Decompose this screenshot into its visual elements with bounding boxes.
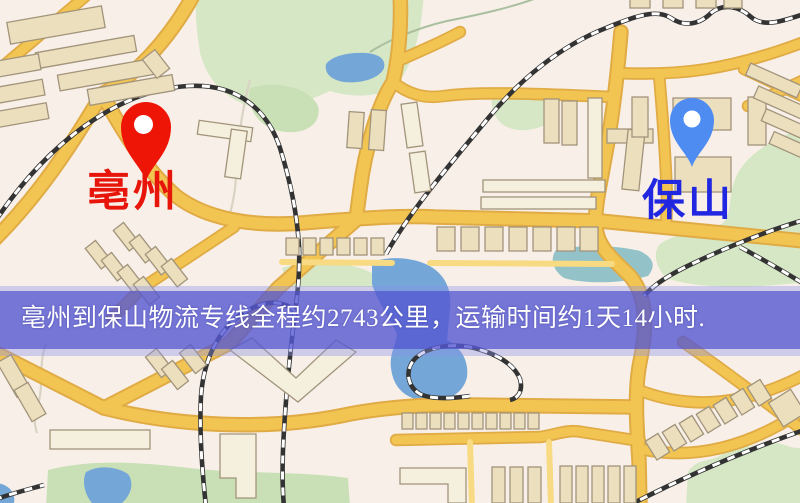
map-image <box>0 0 800 503</box>
red-marker-hole <box>134 115 153 134</box>
destination-city-label: 保山 <box>642 179 734 225</box>
map-canvas: 亳州到保山物流专线全程约2743公里，运输时间约1天14小时. 亳州 保山 <box>0 0 800 503</box>
origin-city-label: 亳州 <box>87 170 179 216</box>
route-summary-text: 亳州到保山物流专线全程约2743公里，运输时间约1天14小时. <box>21 305 705 333</box>
blue-marker-hole <box>684 111 701 128</box>
route-info-banner: 亳州到保山物流专线全程约2743公里，运输时间约1天14小时. <box>0 286 800 356</box>
